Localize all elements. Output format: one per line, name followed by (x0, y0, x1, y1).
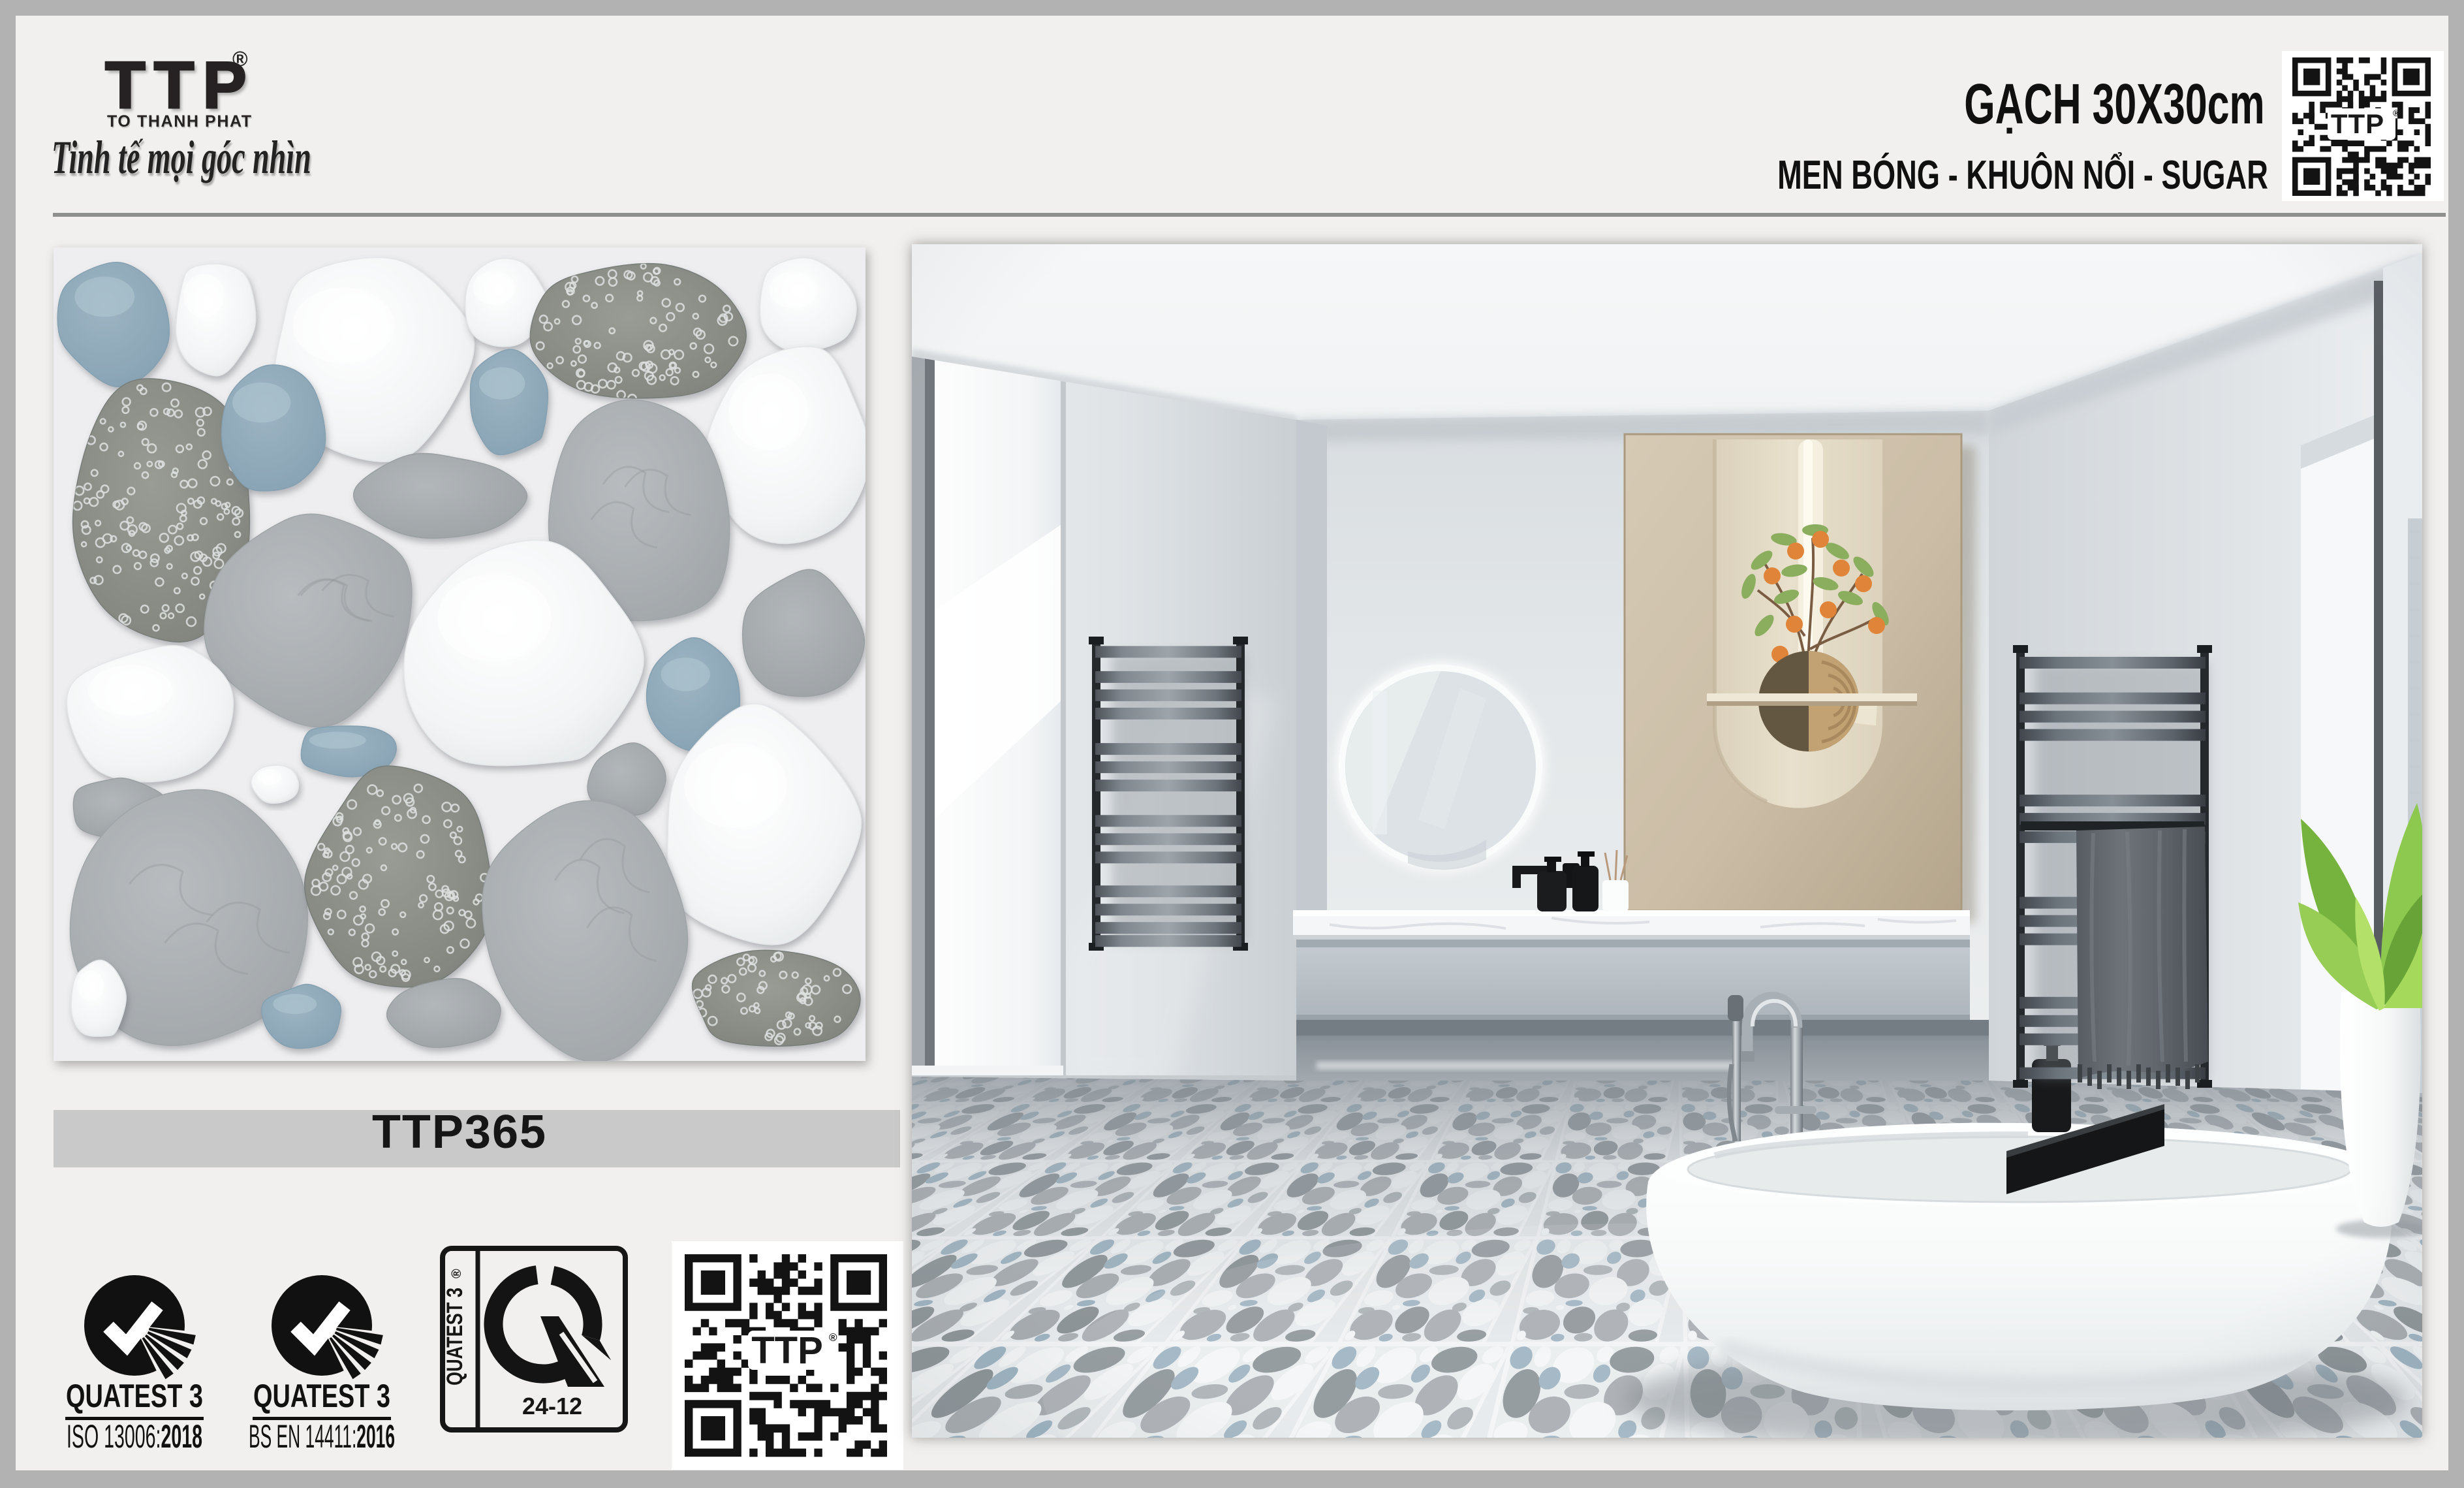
svg-text:®: ® (450, 1269, 464, 1278)
svg-text:QUATEST 3: QUATEST 3 (443, 1288, 467, 1385)
svg-text:TTP: TTP (751, 1329, 823, 1372)
svg-text:QUATEST 3: QUATEST 3 (66, 1378, 203, 1414)
svg-text:24-12: 24-12 (522, 1393, 582, 1419)
svg-text:BS EN 14411:2016: BS EN 14411:2016 (249, 1418, 395, 1455)
svg-text:®: ® (829, 1331, 837, 1344)
svg-text:ISO 13006:2018: ISO 13006:2018 (67, 1418, 202, 1455)
svg-text:TTP: TTP (2331, 108, 2384, 139)
svg-text:®: ® (2393, 108, 2400, 118)
svg-text:QUATEST 3: QUATEST 3 (253, 1378, 390, 1414)
